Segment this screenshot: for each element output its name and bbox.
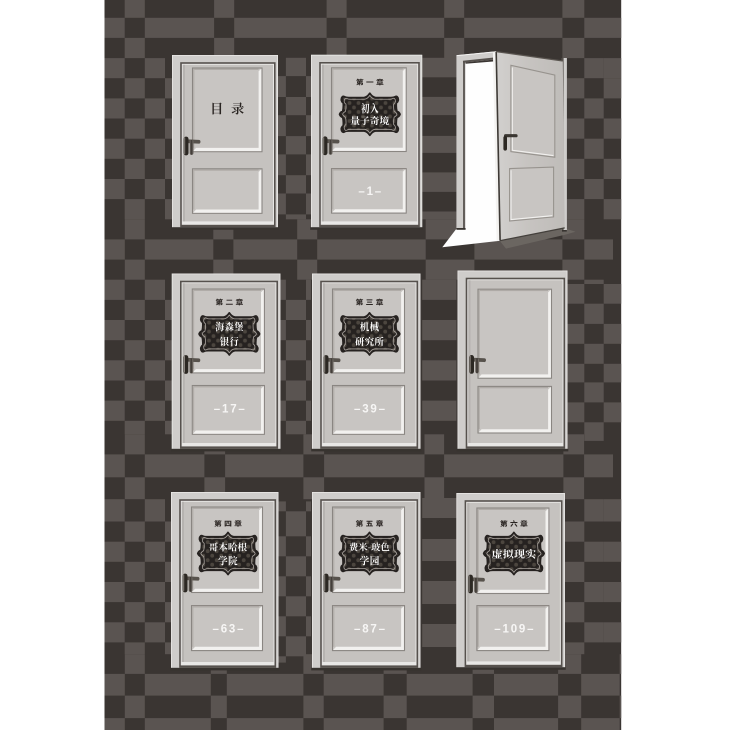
svg-text:–17–: –17– [214, 404, 247, 416]
svg-text:–63–: –63– [213, 623, 246, 635]
svg-text:–39–: –39– [354, 404, 387, 416]
svg-text:–109–: –109– [494, 623, 535, 635]
svg-text:–87–: –87– [354, 623, 387, 635]
svg-text:–1–: –1– [358, 186, 383, 198]
